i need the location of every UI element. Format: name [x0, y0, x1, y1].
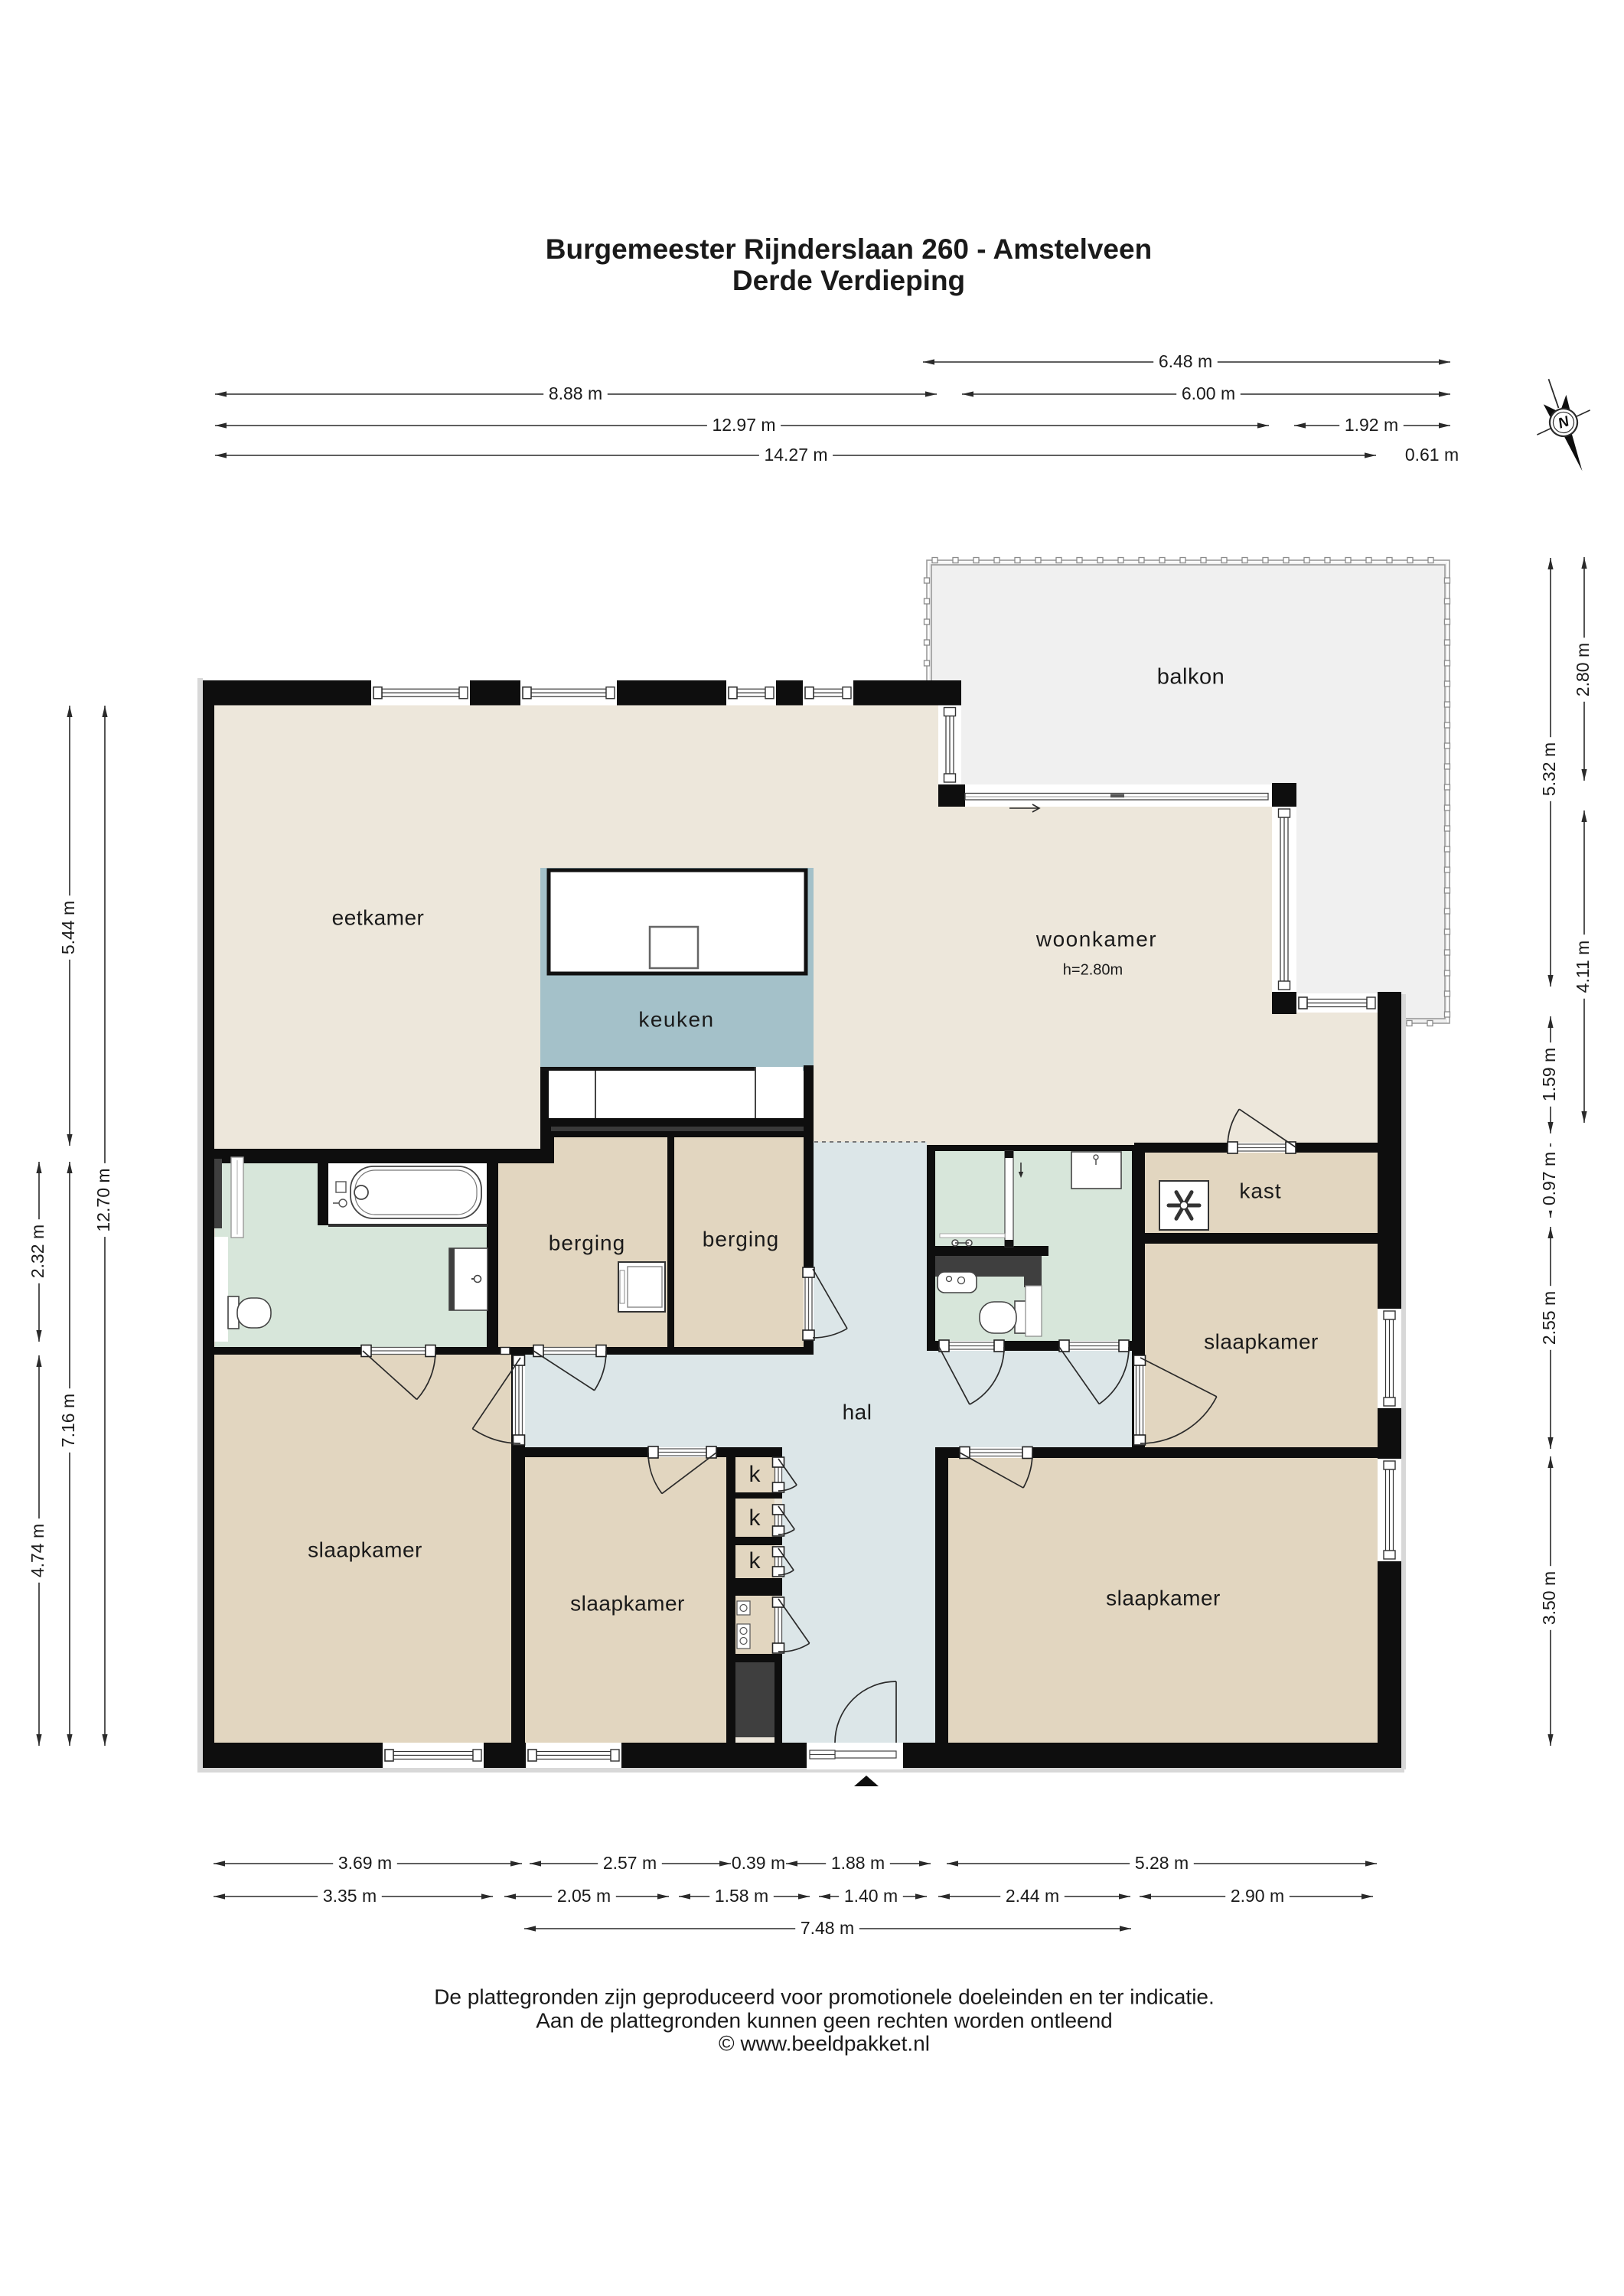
svg-text:2.05 m: 2.05 m — [557, 1886, 611, 1906]
svg-text:7.16 m: 7.16 m — [58, 1394, 78, 1447]
svg-text:k: k — [749, 1505, 761, 1531]
svg-text:12.97 m: 12.97 m — [712, 415, 775, 435]
svg-text:hal: hal — [843, 1400, 872, 1424]
svg-text:berging: berging — [549, 1231, 625, 1254]
svg-text:1.92 m: 1.92 m — [1345, 415, 1398, 435]
svg-text:5.44 m: 5.44 m — [58, 901, 78, 954]
svg-text:Burgemeester Rijnderslaan 260: Burgemeester Rijnderslaan 260 - Amstelve… — [546, 233, 1152, 265]
svg-text:keuken: keuken — [638, 1007, 714, 1031]
svg-text:7.48 m: 7.48 m — [801, 1918, 854, 1938]
svg-text:3.35 m: 3.35 m — [323, 1886, 377, 1906]
svg-text:12.70 m: 12.70 m — [93, 1168, 113, 1231]
svg-text:slaapkamer: slaapkamer — [570, 1591, 685, 1615]
svg-text:2.55 m: 2.55 m — [1539, 1291, 1559, 1345]
svg-text:14.27 m: 14.27 m — [764, 445, 827, 465]
svg-text:3.50 m: 3.50 m — [1539, 1571, 1559, 1625]
svg-text:4.11 m: 4.11 m — [1573, 941, 1593, 993]
svg-text:slaapkamer: slaapkamer — [1204, 1329, 1319, 1353]
svg-text:2.44 m: 2.44 m — [1006, 1886, 1059, 1906]
svg-text:2.57 m: 2.57 m — [603, 1853, 657, 1873]
svg-text:2.80 m: 2.80 m — [1573, 643, 1593, 696]
svg-text:2.90 m: 2.90 m — [1231, 1886, 1284, 1906]
svg-text:0.39 m: 0.39 m — [732, 1853, 785, 1873]
svg-text:6.00 m: 6.00 m — [1182, 383, 1235, 403]
svg-text:balkon: balkon — [1157, 665, 1225, 690]
svg-text:eetkamer: eetkamer — [332, 905, 425, 929]
svg-text:slaapkamer: slaapkamer — [1106, 1586, 1221, 1609]
svg-text:1.58 m: 1.58 m — [715, 1886, 768, 1906]
svg-text:slaapkamer: slaapkamer — [308, 1538, 422, 1561]
svg-text:1.40 m: 1.40 m — [844, 1886, 898, 1906]
svg-text:berging: berging — [703, 1227, 779, 1251]
svg-text:2.32 m: 2.32 m — [28, 1225, 47, 1278]
svg-text:0.61 m: 0.61 m — [1405, 445, 1459, 465]
svg-text:k: k — [749, 1462, 761, 1487]
svg-text:De plattegronden zijn geproduc: De plattegronden zijn geproduceerd voor … — [434, 1985, 1215, 2008]
svg-text:6.48 m: 6.48 m — [1159, 351, 1212, 371]
svg-text:4.74 m: 4.74 m — [28, 1524, 47, 1577]
svg-text:5.28 m: 5.28 m — [1135, 1853, 1189, 1873]
svg-text:kast: kast — [1239, 1179, 1281, 1202]
svg-text:Aan de plattegronden kunnen ge: Aan de plattegronden kunnen geen rechten… — [536, 2008, 1112, 2032]
svg-text:k: k — [749, 1548, 761, 1574]
svg-text:0.97 m: 0.97 m — [1539, 1152, 1559, 1205]
svg-text:1.59 m: 1.59 m — [1539, 1048, 1559, 1101]
svg-text:8.88 m: 8.88 m — [549, 383, 602, 403]
svg-text:3.69 m: 3.69 m — [338, 1853, 392, 1873]
svg-text:1.88 m: 1.88 m — [831, 1853, 885, 1873]
svg-text:h=2.80m: h=2.80m — [1063, 961, 1123, 978]
svg-text:Derde Verdieping: Derde Verdieping — [732, 265, 965, 296]
svg-text:© www.beeldpakket.nl: © www.beeldpakket.nl — [719, 2031, 930, 2055]
svg-text:5.32 m: 5.32 m — [1539, 742, 1559, 796]
svg-text:woonkamer: woonkamer — [1035, 927, 1157, 951]
